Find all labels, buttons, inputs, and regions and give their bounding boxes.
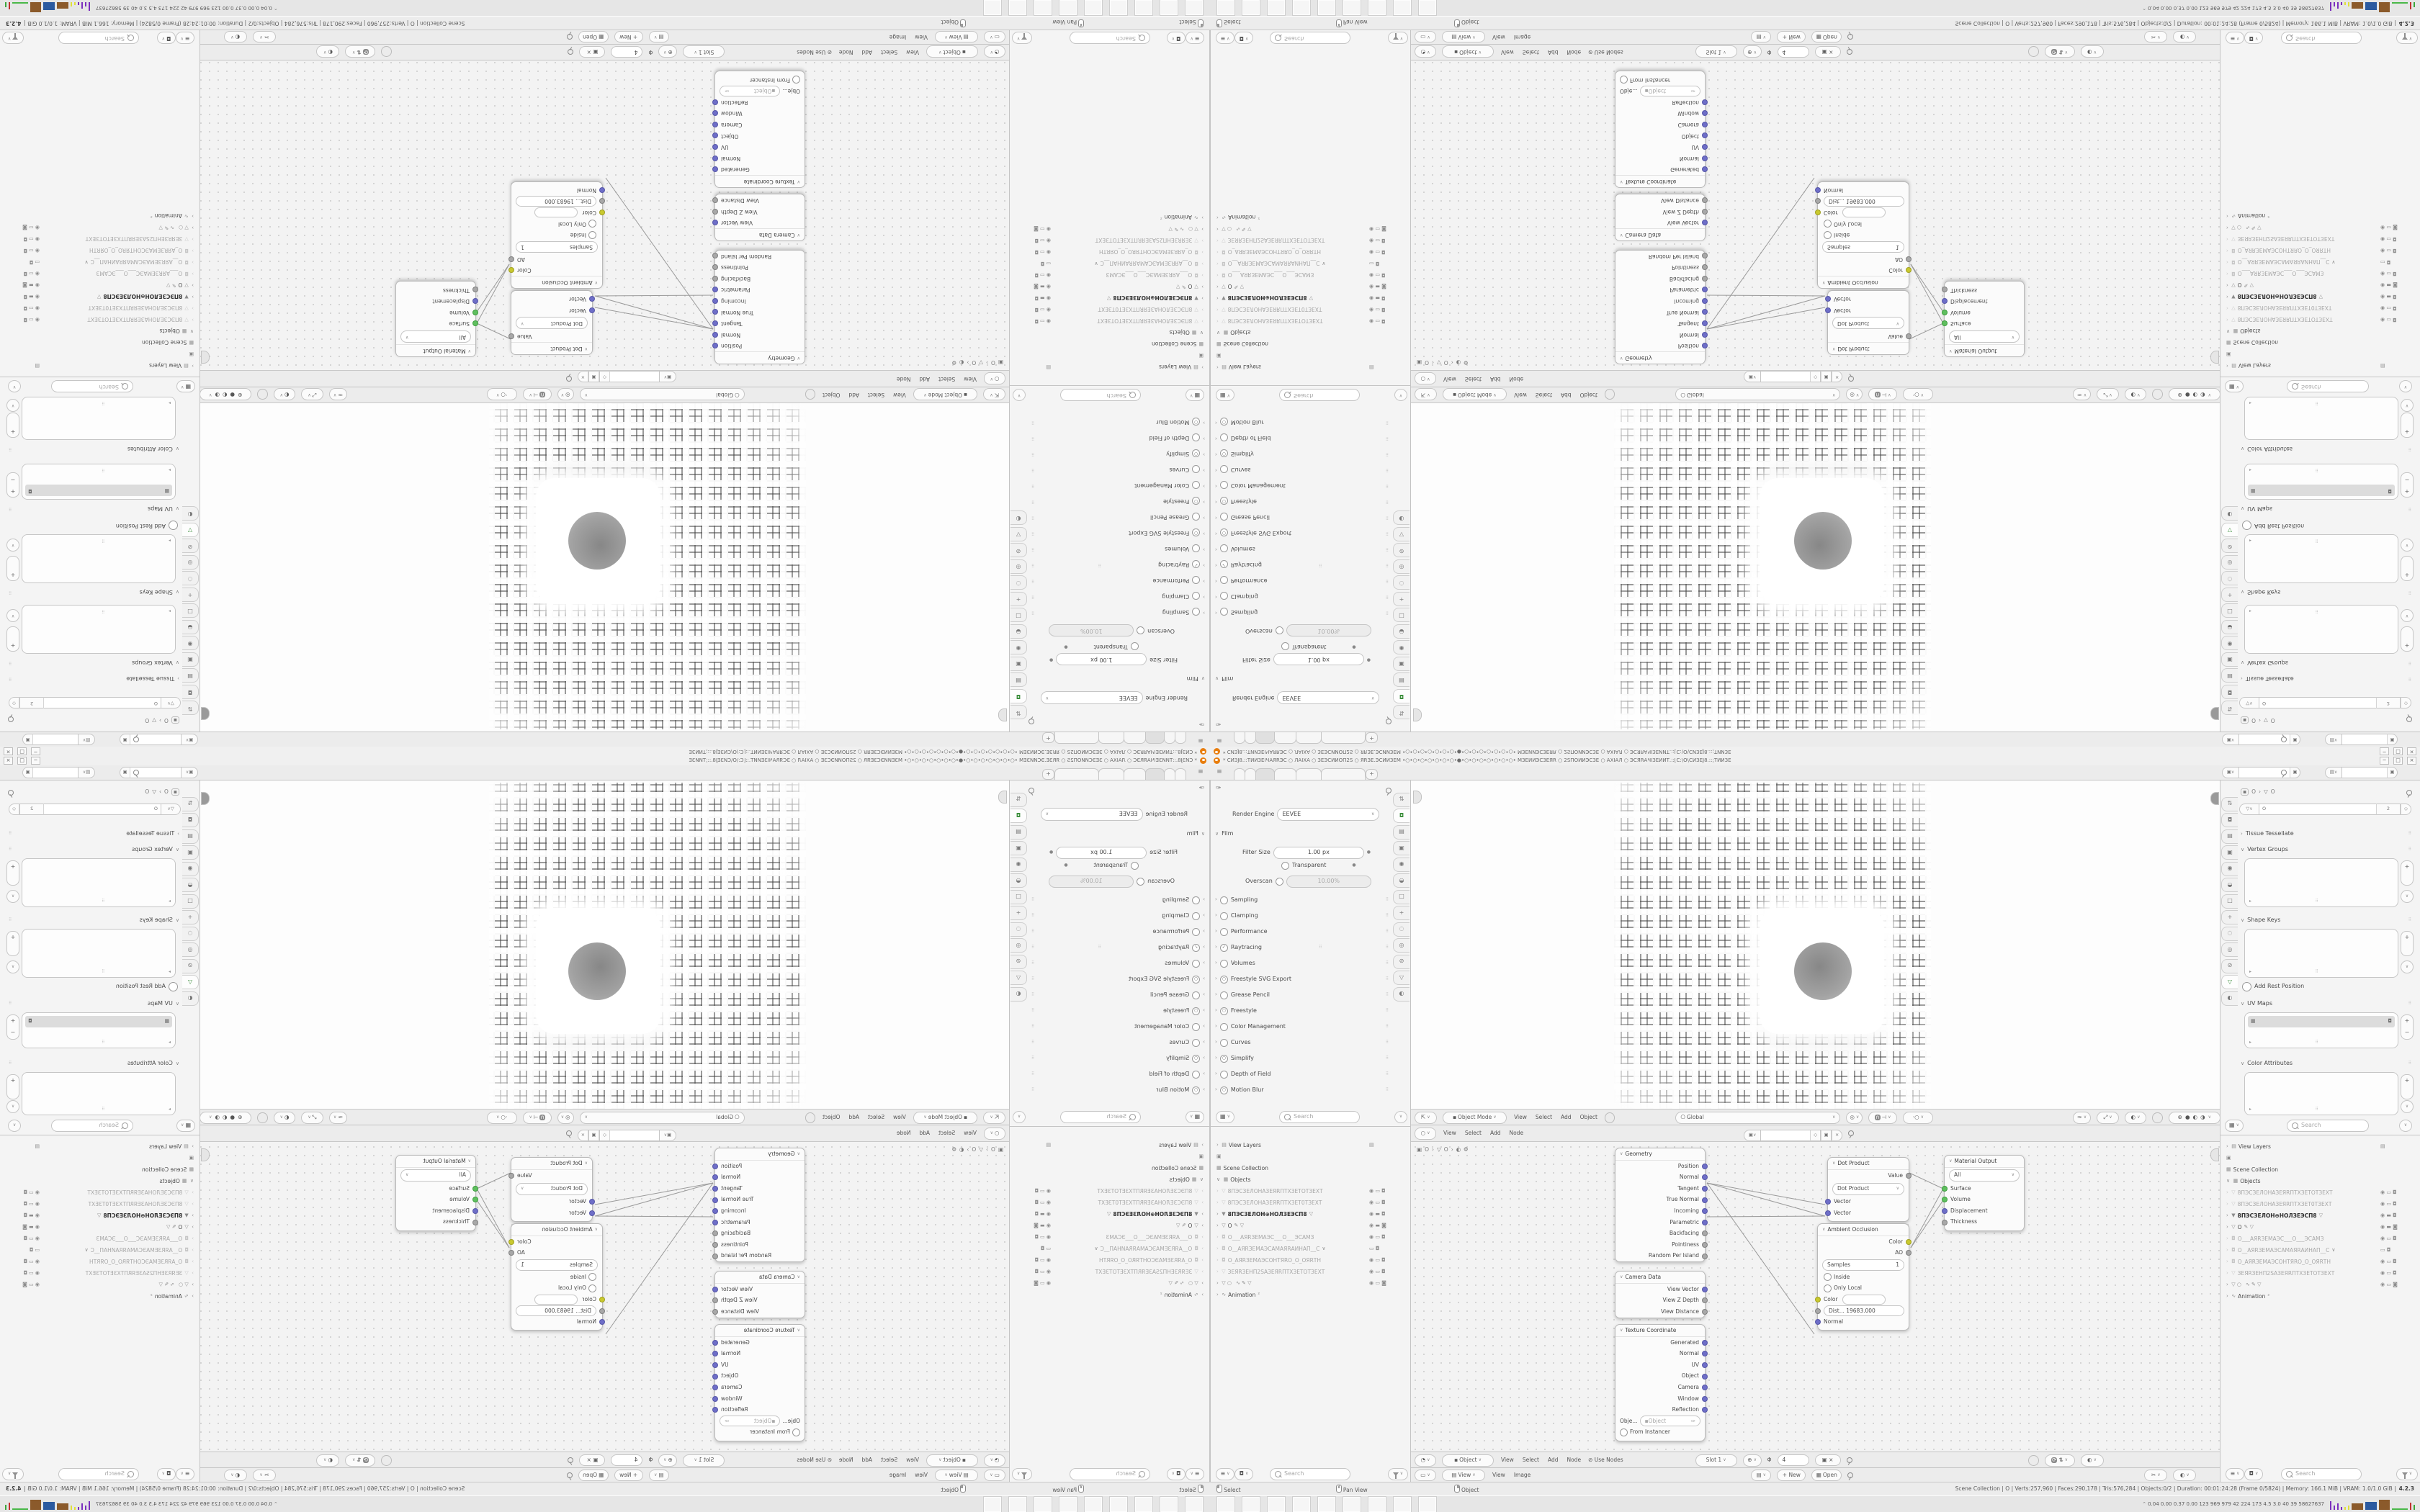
properties-tab[interactable]: ⇅ (182, 701, 199, 716)
properties-tab[interactable]: ◐ (1393, 987, 1410, 1002)
taskbar-app-button[interactable] (1419, 1497, 1436, 1512)
shape-keys-list[interactable]: ▸⠿ (2244, 929, 2398, 978)
outliner-row[interactable]: › ▽ ○ ∿ ✎ ▽ ◉ ▭ ◙ (1212, 222, 1392, 234)
outliner-display-mode[interactable]: ≡∨ (1216, 1468, 1234, 1480)
properties-tab[interactable]: ◎ (182, 942, 199, 957)
viewport-3d[interactable]: ⇱∨ ▪ Object Mode∨ View Select Add Object… (1410, 386, 2221, 732)
node-ambient-occlusion[interactable]: ∨Ambient Occlusion Color AO Samples1 Ins… (511, 1223, 603, 1331)
shader-editor[interactable]: ○∨ View Select Add Node ▣∨ ◇ ▣ × ▣O› ▽O›… (199, 1125, 1010, 1453)
menu-hamburger-icon[interactable]: ≡ (1214, 768, 1224, 777)
node-input-socket[interactable]: Vector (1828, 1197, 1909, 1208)
menu-node[interactable]: Node (1565, 1457, 1582, 1463)
film-panel-header[interactable]: ∨ Film ⠿ (1215, 675, 1404, 681)
outliner-row[interactable]: › ◘ О___АЯRЗЕМАЭС___О___ЭСАМЗ ◉ ▭ ◘ (18, 267, 198, 279)
overlay-button[interactable]: ◐∨ (2173, 31, 2196, 42)
properties-tab[interactable]: ◒ (1393, 873, 1410, 888)
taskbar-app-button[interactable] (1110, 1497, 1127, 1512)
tissue-tessellate-panel[interactable]: ›Tissue Tessellate⠿ (8, 831, 179, 837)
node-input-socket[interactable]: Surface (396, 318, 475, 329)
remove-shape-key-button[interactable] (6, 556, 19, 569)
film-panel-header[interactable]: ∨ Film ⠿ (1016, 675, 1205, 681)
node-texture-coordinate[interactable]: ∨Texture Coordinate Generated Normal UV … (1615, 1324, 1706, 1441)
outliner-row[interactable]: › ▽ ○ ∿ ✎ ▽ ◉ ▭ ◙ (18, 221, 198, 233)
node-output-socket[interactable]: Color (1818, 1236, 1909, 1248)
properties-tab[interactable]: ◉ (2221, 862, 2238, 876)
outliner-display-mode[interactable]: ≡∨ (1186, 1468, 1204, 1480)
node-output-socket[interactable]: View Distance (715, 194, 805, 206)
node-input-socket[interactable]: Volume (396, 1194, 475, 1206)
properties-tab[interactable]: ⊘ (182, 539, 199, 554)
viewport-menu-object[interactable]: Object (821, 1115, 841, 1120)
image-view-select[interactable]: ▤ View∨ (935, 1470, 978, 1481)
node-output-socket[interactable]: Random Per Island (715, 1251, 805, 1262)
render-section-row[interactable]: › Color Management ⠿ (1028, 1019, 1209, 1035)
world-icon-button[interactable]: ⊕∨ (1743, 46, 1762, 58)
outliner-row[interactable]: ∨ ▦ Objects (18, 1176, 198, 1187)
color-attribute-specials[interactable]: ∨ (6, 399, 19, 412)
from-instancer-row[interactable]: From Instancer (1615, 1427, 1705, 1439)
toggle-circle[interactable] (381, 47, 392, 58)
node-output-socket[interactable]: Incoming (1615, 1205, 1705, 1217)
render-section-row[interactable]: › ○ Motion Blur ⠿ (1211, 1082, 1392, 1098)
uv-maps-list[interactable]: ▦◘ ▸⠿ (2244, 1012, 2398, 1048)
view-layer-selector[interactable]: ▤∨ ▣ (22, 768, 95, 778)
properties-tab[interactable]: ◒ (2221, 878, 2238, 892)
properties-tab[interactable]: ▤ (182, 669, 199, 683)
menu-view[interactable]: View (905, 1457, 920, 1463)
visibility-toggles[interactable]: ◉ ▬ ◙ (2380, 1225, 2398, 1230)
node-output-socket[interactable]: Backfacing (1615, 273, 1705, 284)
options-button[interactable]: ∨ (2399, 380, 2412, 392)
visibility-toggles[interactable]: ◉ ▭ ◘ (1034, 248, 1051, 254)
snap-button[interactable]: ∩⊣∨ (523, 389, 552, 401)
properties-tab[interactable]: ▽ (2221, 523, 2238, 537)
mesh-icon[interactable]: ▽∨ (2239, 697, 2259, 708)
menu-node[interactable]: Node (838, 49, 855, 55)
properties-tab[interactable]: ◐ (2221, 991, 2238, 1006)
visibility-toggles[interactable]: ◉ ▭ ◘ (23, 316, 40, 322)
inside-checkbox-row[interactable]: Inside (1818, 229, 1909, 240)
outliner-row[interactable]: › ▽ ○ ∿ ✎ ▽ ◉ ▭ ◙ (2222, 1279, 2402, 1291)
outliner-row[interactable]: › ▼ 8ПЭСЗЕЛОН⊕НОЛЗЕЭСП8 ▽ ◉ ▬ ◘ (18, 290, 198, 302)
outliner-row[interactable]: › ▽ O ✎ ▽ ◉ ▬ ◙ (18, 1222, 198, 1233)
outliner-search-input[interactable]: Search (1270, 1468, 1350, 1480)
mesh-icon[interactable]: ▽∨ (2239, 804, 2259, 815)
properties-tab[interactable]: ◒ (182, 878, 199, 892)
shader-menu-add[interactable]: Add (1489, 376, 1502, 382)
overlay-group[interactable]: ◐∨ (2081, 1454, 2104, 1467)
snap-group[interactable]: ⟳⇅∨ (2045, 46, 2075, 58)
visibility-toggles[interactable]: ▤ (35, 362, 40, 368)
shading-rendered-icon[interactable]: ◑ (2200, 392, 2205, 397)
uv-camera-icon[interactable]: ◘ (28, 487, 32, 493)
shader-menu-add[interactable]: Add (918, 376, 932, 382)
properties-tab[interactable]: ▣ (1393, 657, 1410, 671)
visibility-toggles[interactable]: ◉ ▭ ◘ (23, 1236, 40, 1242)
properties-tab[interactable]: ⊘ (1010, 544, 1027, 558)
pin-icon[interactable] (133, 737, 139, 742)
uv-maps-panel[interactable]: ∨UV Maps⠿ (8, 1001, 179, 1007)
render-section-row[interactable]: › Curves ⠿ (1028, 1035, 1209, 1050)
uv-maps-panel[interactable]: ∨UV Maps⠿ (2241, 505, 2412, 511)
outliner-row[interactable]: › ▽ O ✎ ▽ ◉ ▬ ◙ (1212, 1220, 1392, 1232)
copy-x-buttons[interactable]: ▣ × (1815, 1454, 1841, 1466)
outliner-row[interactable]: › ▽ O ✎ ▽ ◉ ▬ ◙ (1028, 280, 1208, 292)
node-output-socket[interactable]: Position (1615, 1161, 1705, 1172)
outliner-search-input[interactable]: Search (2281, 1468, 2362, 1480)
node-input-socket[interactable]: Volume (396, 307, 475, 318)
options-button[interactable]: ∨ (2399, 1120, 2412, 1132)
node-output-socket[interactable]: Incoming (1615, 295, 1705, 307)
render-section-row[interactable]: › ○ Freestyle ⠿ (1211, 493, 1392, 509)
taskbar-app-button[interactable] (1368, 0, 1386, 15)
properties-tab[interactable]: + (1010, 592, 1027, 606)
editor-type-shader[interactable]: ○∨ (1415, 373, 1436, 385)
copy-icon[interactable]: ▣ (22, 767, 33, 778)
properties-tab[interactable]: ▤ (1010, 825, 1027, 840)
material-selector[interactable]: ▣∨ ◇ ▣ × (1744, 1130, 1842, 1140)
taskbar-app-button[interactable] (1059, 1497, 1077, 1512)
sidebar-toggle-arrow[interactable] (2210, 707, 2219, 720)
object-field[interactable]: ▪ Object✑ (720, 86, 780, 96)
pin-icon[interactable] (567, 1472, 573, 1478)
visibility-toggles[interactable]: ◉ ▭ ◘ (1369, 1258, 1386, 1264)
material-browse-icon[interactable]: ▣∨ (1744, 1130, 1761, 1141)
visibility-toggles[interactable]: ◉ ▭ ◘ (23, 1190, 40, 1196)
node-output-socket[interactable]: Incoming (715, 1205, 805, 1217)
visibility-toggles[interactable]: ◉ ▭ ◘ (23, 1271, 40, 1277)
taskbar-app-button[interactable] (1160, 1497, 1178, 1512)
tray-expand-chevrons[interactable]: ⌃ (2142, 5, 2146, 11)
copy-icon[interactable]: ▣ (2387, 734, 2398, 745)
pin-icon[interactable] (1847, 1457, 1852, 1463)
vertex-group-specials[interactable]: ∨ (2401, 890, 2414, 903)
vertex-groups-panel[interactable]: ∨Vertex Groups⠿ (2241, 847, 2412, 853)
node-material-output[interactable]: ∨Material Output All∨ Surface Volume Dis… (395, 1155, 476, 1231)
outliner-search-input[interactable]: Search (1070, 1468, 1150, 1480)
outliner-row[interactable]: › ◘ О__АЯRЗЕМАЭСАМАЯRАИНАП__С ∨ ▭ ◘ (18, 256, 198, 267)
pin-icon[interactable] (1028, 788, 1034, 793)
properties-tab[interactable]: ▽ (2221, 975, 2238, 989)
outliner-filter-button[interactable]: ∨ (2396, 32, 2418, 44)
scene-icon[interactable]: ▣∨ (181, 734, 198, 745)
properties-tab[interactable]: ⊘ (1010, 955, 1027, 969)
viewport-menu-view[interactable]: View (892, 392, 907, 397)
snap-button[interactable]: ∩⊣∨ (1868, 389, 1897, 401)
outliner-row[interactable]: › ▽ 8ПЭСЗЕЛОНАЗЕЯRПТХЗЕТ0ТЗЕХТ ◉ ▭ ◘ (18, 302, 198, 313)
outliner-row[interactable]: › ∿ Animation ² (1212, 211, 1392, 222)
node-input-socket[interactable]: Vector (1828, 293, 1909, 305)
outliner-row[interactable]: › ∿ Animation ² (1028, 1290, 1208, 1301)
node-output-socket[interactable]: Backfacing (715, 273, 805, 284)
workspace-tab[interactable] (1274, 732, 1296, 744)
outliner-row[interactable]: › ◘ О__АЯRЗЕМАЭСАМАЯRАИНАП__С ∨ ▭ ◘ (1212, 257, 1392, 269)
properties-tab[interactable]: ▤ (1393, 825, 1410, 840)
add-vertex-group-button[interactable]: + (2401, 638, 2414, 652)
vertex-groups-panel[interactable]: ∨Vertex Groups⠿ (2241, 659, 2412, 665)
options-button[interactable]: ∨ (1394, 1111, 1407, 1123)
n-panel-arrow[interactable] (2210, 1148, 2219, 1161)
taskbar-app-button[interactable] (1135, 0, 1152, 15)
output-target-select[interactable]: All∨ (1949, 330, 2020, 343)
menu-add[interactable]: Add (1546, 1457, 1560, 1463)
properties-tab[interactable]: ▤ (1393, 673, 1410, 688)
overscan-checkbox[interactable] (1276, 626, 1283, 634)
snap-group[interactable]: ⟳⇅∨ (345, 46, 375, 58)
visibility-toggles[interactable]: ◉ ▭ ◘ (1369, 1269, 1386, 1275)
workspace-tab[interactable] (1124, 768, 1146, 780)
node-texture-coordinate[interactable]: ∨Texture Coordinate Generated Normal UV … (714, 71, 805, 188)
outliner-row[interactable]: › ▽ O ✎ ▽ ◉ ▬ ◙ (1028, 1220, 1208, 1232)
node-output-socket[interactable]: True Normal (715, 307, 805, 318)
shading-rendered-icon[interactable]: ◑ (215, 1115, 220, 1120)
shader-type-select[interactable]: ▪ Object∨ (926, 46, 978, 58)
gizmo-button[interactable]: ✑∨ (329, 389, 347, 401)
node-output-socket[interactable]: Object (715, 1371, 805, 1382)
properties-tab[interactable]: ◎ (1010, 938, 1027, 953)
viewport-menu-add[interactable]: Add (1559, 392, 1573, 397)
outliner-row[interactable]: › ▽ O ✎ ▽ ◉ ▬ ◙ (18, 279, 198, 290)
node-output-socket[interactable]: View Z Depth (715, 206, 805, 217)
outliner-row[interactable]: › ▽ 8ПЭСЗЕЛОНАЗЕЯRПТХЗЕТОТЗЕХТ ◉ ▭ ◘ (18, 313, 198, 325)
properties-tab[interactable]: ◎ (1393, 938, 1410, 953)
vector-math-op-select[interactable]: Dot Product∨ (516, 317, 588, 329)
node-output-socket[interactable]: AO (511, 253, 602, 265)
shader-menu-add[interactable]: Add (918, 1130, 932, 1136)
outliner-filter-button[interactable]: ∨ (1388, 32, 1408, 44)
close-button[interactable]: × (4, 747, 13, 755)
outliner-row[interactable]: › ▽ ○ ∿ ✎ ▽ ◉ ▭ ◙ (1212, 1278, 1392, 1290)
add-workspace-button[interactable]: + (1366, 732, 1378, 743)
shape-keys-list[interactable]: ▸⠿ (22, 534, 176, 583)
outliner-filter-mode[interactable]: ◘∨ (157, 1468, 176, 1480)
editor-type-image[interactable]: ▭∨ (984, 1470, 1005, 1481)
properties-tab[interactable]: □ (2221, 604, 2238, 618)
snap-target-button[interactable]: ◎∨ (557, 1112, 574, 1124)
clip-tools-button[interactable]: ✂∨ (2144, 31, 2167, 42)
menu-add[interactable]: Add (861, 49, 874, 55)
visibility-toggles[interactable]: ◉ ▭ ◘ (1369, 306, 1386, 312)
output-target-select[interactable]: All∨ (400, 1169, 471, 1182)
render-section-row[interactable]: › Color Management ⠿ (1211, 477, 1392, 493)
visibility-toggles[interactable]: ▭ ◘ (30, 1248, 40, 1254)
node-camera-data[interactable]: ∨Camera Data View Vector View Z Depth Vi… (1615, 1271, 1706, 1318)
scene-selector[interactable]: ▣∨ ▣ (120, 734, 198, 744)
menu-add[interactable]: Add (861, 1457, 874, 1463)
outliner-row[interactable]: › ▽ 8ПЭСЗЕЛОНАЗЕЯRПТХЗЕТ0ТЗЕХТ ◉ ▭ ◘ (2222, 302, 2402, 313)
pin-icon[interactable] (2281, 770, 2287, 775)
toggle-circle[interactable] (2028, 1455, 2039, 1466)
clip-tools-button[interactable]: ✂∨ (253, 31, 276, 42)
render-section-row[interactable]: › Depth of Field ⠿ (1211, 1066, 1392, 1082)
view-layer-field[interactable] (2342, 734, 2387, 745)
node-output-socket[interactable]: Tangent (715, 1183, 805, 1194)
properties-tab[interactable]: ▽ (182, 975, 199, 989)
node-output-socket[interactable]: Tangent (1615, 318, 1705, 329)
properties-tab[interactable]: ◒ (1010, 873, 1027, 888)
node-output-socket[interactable]: Generated (715, 1337, 805, 1349)
node-input-socket[interactable]: Normal (1818, 1317, 1909, 1328)
menu-hamburger-icon[interactable]: ≡ (1196, 735, 1206, 744)
node-output-socket[interactable]: Reflection (1615, 1405, 1705, 1416)
outliner-row[interactable]: › ◘ О__АЯRЗЕМАЭСАМАЯRАИНАП__С ∨ ▭ ◘ (1028, 257, 1208, 269)
image-menu-view[interactable]: View (1491, 1472, 1507, 1478)
properties-tab[interactable]: ▤ (2221, 669, 2238, 683)
render-section-row[interactable]: › ✓ Raytracing ⠿ ⠿ (1211, 557, 1392, 572)
menu-select[interactable]: Select (879, 49, 899, 55)
node-output-socket[interactable]: Value (511, 330, 592, 342)
image-browse-icon[interactable]: ▤∨ (1751, 31, 1771, 42)
node-output-socket[interactable]: AO (511, 1248, 602, 1259)
pin-icon[interactable] (1848, 1130, 1854, 1136)
render-section-row[interactable]: › ✓ Raytracing ⠿ ⠿ (1028, 940, 1209, 955)
pin-icon[interactable] (568, 1457, 573, 1463)
properties-tab[interactable]: □ (182, 894, 199, 909)
vertex-group-specials[interactable]: ∨ (6, 609, 19, 622)
viewport-menu-object[interactable]: Object (1579, 392, 1599, 397)
visibility-toggles[interactable]: ◉ ▭ ◘ (23, 270, 40, 276)
shading-wireframe-icon[interactable]: ⊕ (2178, 392, 2182, 397)
workspace-tab[interactable] (1164, 732, 1175, 744)
image-menu-image[interactable]: Image (888, 1472, 908, 1478)
properties-tab[interactable]: ◌ (2221, 572, 2238, 586)
color-attributes-panel[interactable]: ∨Color Attributes⠿ (8, 445, 179, 451)
properties-tab[interactable]: ▣ (182, 652, 199, 667)
outliner-row[interactable]: › ◘ О___АЯRЗЕМАЭС___О___ЭСАМЗ ◉ ▭ ◘ (2222, 1233, 2402, 1245)
render-engine-select[interactable]: EEVEE ∨ (1277, 691, 1379, 704)
options-button[interactable]: ∨ (1394, 389, 1407, 401)
filter-size-field[interactable]: 1.00 px (1273, 847, 1364, 859)
properties-tab[interactable]: + (182, 910, 199, 924)
color-attribute-specials[interactable]: ∨ (2401, 1100, 2414, 1113)
visibility-toggles[interactable]: ◉ ▭ ◘ (1034, 237, 1051, 243)
visibility-toggles[interactable]: ◉ ▭ ◙ (1034, 225, 1051, 231)
viewport-3d[interactable]: ⇱∨ ▪ Object Mode∨ View Select Add Object… (1410, 780, 2221, 1126)
data-search-input[interactable]: Search (51, 380, 133, 392)
node-input-socket[interactable]: Dist... 19683.000 (1818, 195, 1909, 207)
remove-vertex-group-button[interactable] (6, 873, 19, 886)
node-output-socket[interactable]: Window (1615, 107, 1705, 119)
uv-map-item-selected[interactable]: ▦◘ (25, 1016, 172, 1027)
material-name-field[interactable] (1761, 1130, 1810, 1141)
visibility-toggles[interactable]: ◉ ▭ ◘ (2380, 316, 2397, 322)
workspace-tab[interactable] (1321, 732, 1366, 744)
mesh-name-field[interactable]: O (44, 804, 161, 815)
only-local-checkbox-row[interactable]: Only Local (1818, 1283, 1909, 1295)
add-rest-position-checkbox[interactable] (2242, 982, 2251, 991)
node-output-socket[interactable]: Camera (715, 1382, 805, 1393)
properties-tab[interactable]: ⇅ (1010, 706, 1027, 720)
from-instancer-row[interactable]: From Instancer (1615, 74, 1705, 86)
outliner-row[interactable]: ▦ Scene Collection (1028, 338, 1208, 349)
copy-material-icon[interactable]: ▣ (588, 1130, 599, 1141)
toggle-circle[interactable] (2152, 390, 2162, 400)
overscan-checkbox[interactable] (1276, 878, 1283, 886)
outliner-row[interactable]: › ∿ Animation ² (18, 210, 198, 221)
shader-menu-view[interactable]: View (962, 376, 978, 382)
node-geometry[interactable]: ∨Geometry Position Normal Tangent True N… (1615, 1148, 1706, 1262)
vector-math-op-select[interactable]: Dot Product∨ (1832, 1183, 1904, 1195)
node-output-socket[interactable]: View Z Depth (715, 1295, 805, 1307)
mode-select[interactable]: ▪ Object Mode∨ (913, 389, 978, 401)
inside-checkbox-row[interactable]: Inside (511, 1272, 602, 1283)
image-view-select[interactable]: ▤ View∨ (1442, 31, 1485, 42)
pin-icon[interactable] (1847, 34, 1853, 40)
render-section-row[interactable]: › Color Management ⠿ (1028, 477, 1209, 493)
scene-name-field[interactable] (2239, 767, 2290, 778)
outliner-row[interactable]: › ◘ О___АЯRЗЕМАЭС___О___ЭСАМЗ ◉ ▭ ◘ (1212, 1232, 1392, 1243)
render-section-row[interactable]: › ○ Motion Blur ⠿ (1211, 414, 1392, 430)
samples-field[interactable]: Samples1 (516, 241, 598, 253)
menu-select[interactable]: Select (1521, 1457, 1541, 1463)
node-output-socket[interactable]: True Normal (715, 1194, 805, 1206)
visibility-toggles[interactable]: ◉ ▭ ◘ (2380, 305, 2397, 310)
outliner-row[interactable]: › ◘ О_АЯRЗЕМАЭСОНТЯRО_О_ОЯRТН ◉ ▭ ◘ (1212, 1255, 1392, 1266)
node-ambient-occlusion[interactable]: ∨Ambient Occlusion Color AO Samples1 Ins… (511, 181, 603, 289)
properties-tab[interactable]: ◎ (2221, 555, 2238, 570)
properties-tab[interactable]: ◘ (2221, 685, 2238, 699)
outliner-row[interactable]: › ▽ 8ПЭСЗЕЛОНАЗЕЯRПТХЗЕТ0ТЗЕХТ ◉ ▭ ◘ (2222, 1199, 2402, 1210)
n-panel-arrow[interactable] (201, 351, 210, 364)
editor-type-icon[interactable]: ◔∨ (984, 1454, 1005, 1467)
outliner-row[interactable]: › ◘ О_АЯRЗЕМАЭСОНТЯRО_О_ОЯRТН ◉ ▭ ◘ (1028, 246, 1208, 257)
properties-tab[interactable]: ⇅ (1010, 793, 1027, 807)
render-section-row[interactable]: › Depth of Field ⠿ (1211, 430, 1392, 446)
slot-select[interactable]: Slot 1∨ (1695, 46, 1737, 58)
overscan-field[interactable]: 10.00% (1286, 876, 1371, 888)
node-input-socket[interactable]: Vector (511, 293, 592, 305)
n-panel-arrow[interactable] (201, 1148, 210, 1161)
outliner-row[interactable]: › ▽ 8ПЭСЗЕЛОНАЗЕЯRПТХЗЕТОТЗЕХТ ◉ ▭ ◘ (1028, 1186, 1208, 1197)
transparent-row[interactable]: Transparent ● (1064, 862, 1139, 870)
outliner-row[interactable]: › ◘ О__АЯRЗЕМАЭСАМАЯRАИНАП__С ∨ ▭ ◘ (1212, 1243, 1392, 1255)
shader-editor[interactable]: ○∨ View Select Add Node ▣∨ ◇ ▣ × ▣O› ▽O›… (1410, 59, 2221, 387)
shading-wireframe-icon[interactable]: ⊕ (238, 1115, 242, 1120)
vector-math-op-select[interactable]: Dot Product∨ (516, 1183, 588, 1195)
use-nodes-checkbox[interactable]: ⊘ Use Nodes (1588, 49, 1623, 55)
node-output-socket[interactable]: Window (1615, 1393, 1705, 1405)
editor-type-viewport[interactable]: ⇱∨ (983, 1112, 1005, 1124)
node-input-socket[interactable]: Vector (1828, 305, 1909, 316)
properties-tab[interactable]: ⊘ (182, 959, 199, 973)
view-layer-selector[interactable]: ▤∨ ▣ (2325, 734, 2398, 744)
inside-checkbox-row[interactable]: Inside (1818, 1272, 1909, 1283)
properties-tab[interactable]: ◉ (1393, 858, 1410, 872)
options-button[interactable]: ∨ (1013, 1111, 1026, 1123)
pin-icon[interactable] (568, 49, 573, 55)
uv-maps-list[interactable]: ▦◘ ▸⠿ (22, 464, 176, 500)
render-section-row[interactable]: › Clamping ⠿ (1211, 588, 1392, 604)
workspace-tab[interactable] (1296, 732, 1322, 744)
visibility-toggles[interactable]: ◉ ▭ ◘ (1369, 248, 1386, 254)
taskbar-app-button[interactable] (1368, 1497, 1386, 1512)
outliner-row[interactable]: ∨ ▦ Objects (18, 325, 198, 336)
node-output-socket[interactable]: UV (715, 1359, 805, 1371)
node-output-socket[interactable]: Tangent (1615, 1183, 1705, 1194)
node-ambient-occlusion[interactable]: ∨Ambient Occlusion Color AO Samples1 Ins… (1817, 1223, 1909, 1331)
outliner-row[interactable]: › ▼ 8ПЭСЗЕЛОН⊕НОЛЗЕЭСП8 ▽ ◉ ▬ ◘ (2222, 1210, 2402, 1222)
overlays-button[interactable]: ⤢∨ (2097, 1112, 2119, 1124)
node-input-socket[interactable]: Surface (1945, 1183, 2024, 1194)
node-input-socket[interactable]: Color (511, 1294, 602, 1305)
image-browse-icon[interactable]: ▤∨ (1751, 1470, 1771, 1481)
node-input-socket[interactable]: Dist... 19683.000 (511, 1305, 602, 1317)
properties-tab[interactable]: ▣ (2221, 845, 2238, 860)
node-output-socket[interactable]: Normal (1615, 329, 1705, 341)
proportional-edit-button[interactable]: ·○∨ (1903, 389, 1933, 401)
render-section-row[interactable]: › Grease Pencil ⠿ (1211, 509, 1392, 525)
node-texture-coordinate[interactable]: ∨Texture Coordinate Generated Normal UV … (1615, 71, 1706, 188)
